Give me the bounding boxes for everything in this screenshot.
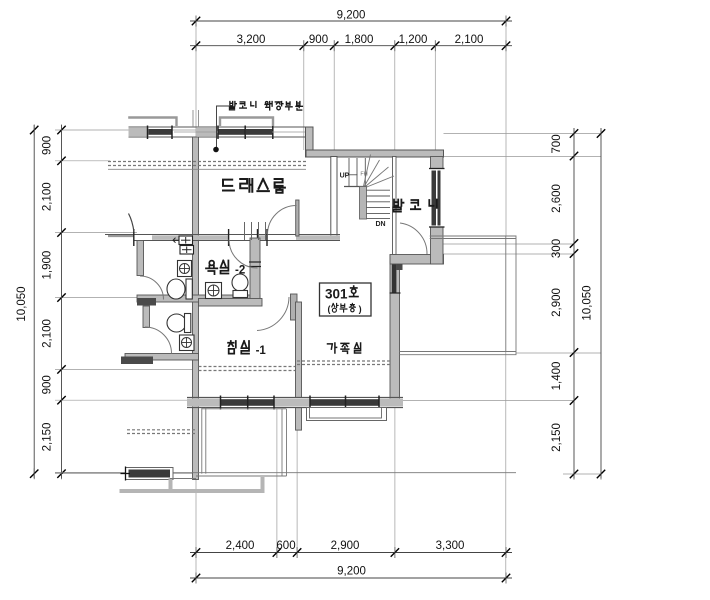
svg-text:1,200: 1,200 xyxy=(399,34,428,46)
svg-text:FH: FH xyxy=(360,172,367,178)
svg-text:2,100: 2,100 xyxy=(42,319,54,348)
svg-text:-2: -2 xyxy=(235,265,245,277)
svg-text:700: 700 xyxy=(551,134,563,153)
svg-text:UP: UP xyxy=(340,173,350,180)
svg-text:300: 300 xyxy=(551,239,563,258)
svg-text:3,300: 3,300 xyxy=(436,540,465,552)
svg-text:2,900: 2,900 xyxy=(331,540,360,552)
svg-text:900: 900 xyxy=(42,136,54,155)
svg-text:2,600: 2,600 xyxy=(551,184,563,213)
svg-text:10,050: 10,050 xyxy=(582,285,594,320)
svg-text:2,150: 2,150 xyxy=(551,423,563,452)
svg-text:900: 900 xyxy=(42,375,54,394)
svg-text:600: 600 xyxy=(276,540,295,552)
svg-text:2,100: 2,100 xyxy=(455,34,484,46)
svg-text:900: 900 xyxy=(309,34,328,46)
svg-text:2,400: 2,400 xyxy=(226,540,255,552)
svg-text:1,800: 1,800 xyxy=(345,34,374,46)
svg-text:3,200: 3,200 xyxy=(237,34,266,46)
svg-text:1,900: 1,900 xyxy=(42,251,54,280)
svg-text:2,100: 2,100 xyxy=(42,182,54,211)
svg-text:-1: -1 xyxy=(256,345,267,357)
svg-text:): ) xyxy=(359,304,362,314)
svg-text:2,150: 2,150 xyxy=(42,423,54,452)
svg-text:10,050: 10,050 xyxy=(16,286,28,321)
svg-text:DN: DN xyxy=(375,221,385,228)
svg-text:1,400: 1,400 xyxy=(551,362,563,391)
svg-text:301: 301 xyxy=(325,286,348,301)
svg-text:2,900: 2,900 xyxy=(551,288,563,317)
svg-text:9,200: 9,200 xyxy=(337,10,366,22)
svg-text:(: ( xyxy=(328,304,331,314)
svg-text:9,200: 9,200 xyxy=(337,566,366,578)
